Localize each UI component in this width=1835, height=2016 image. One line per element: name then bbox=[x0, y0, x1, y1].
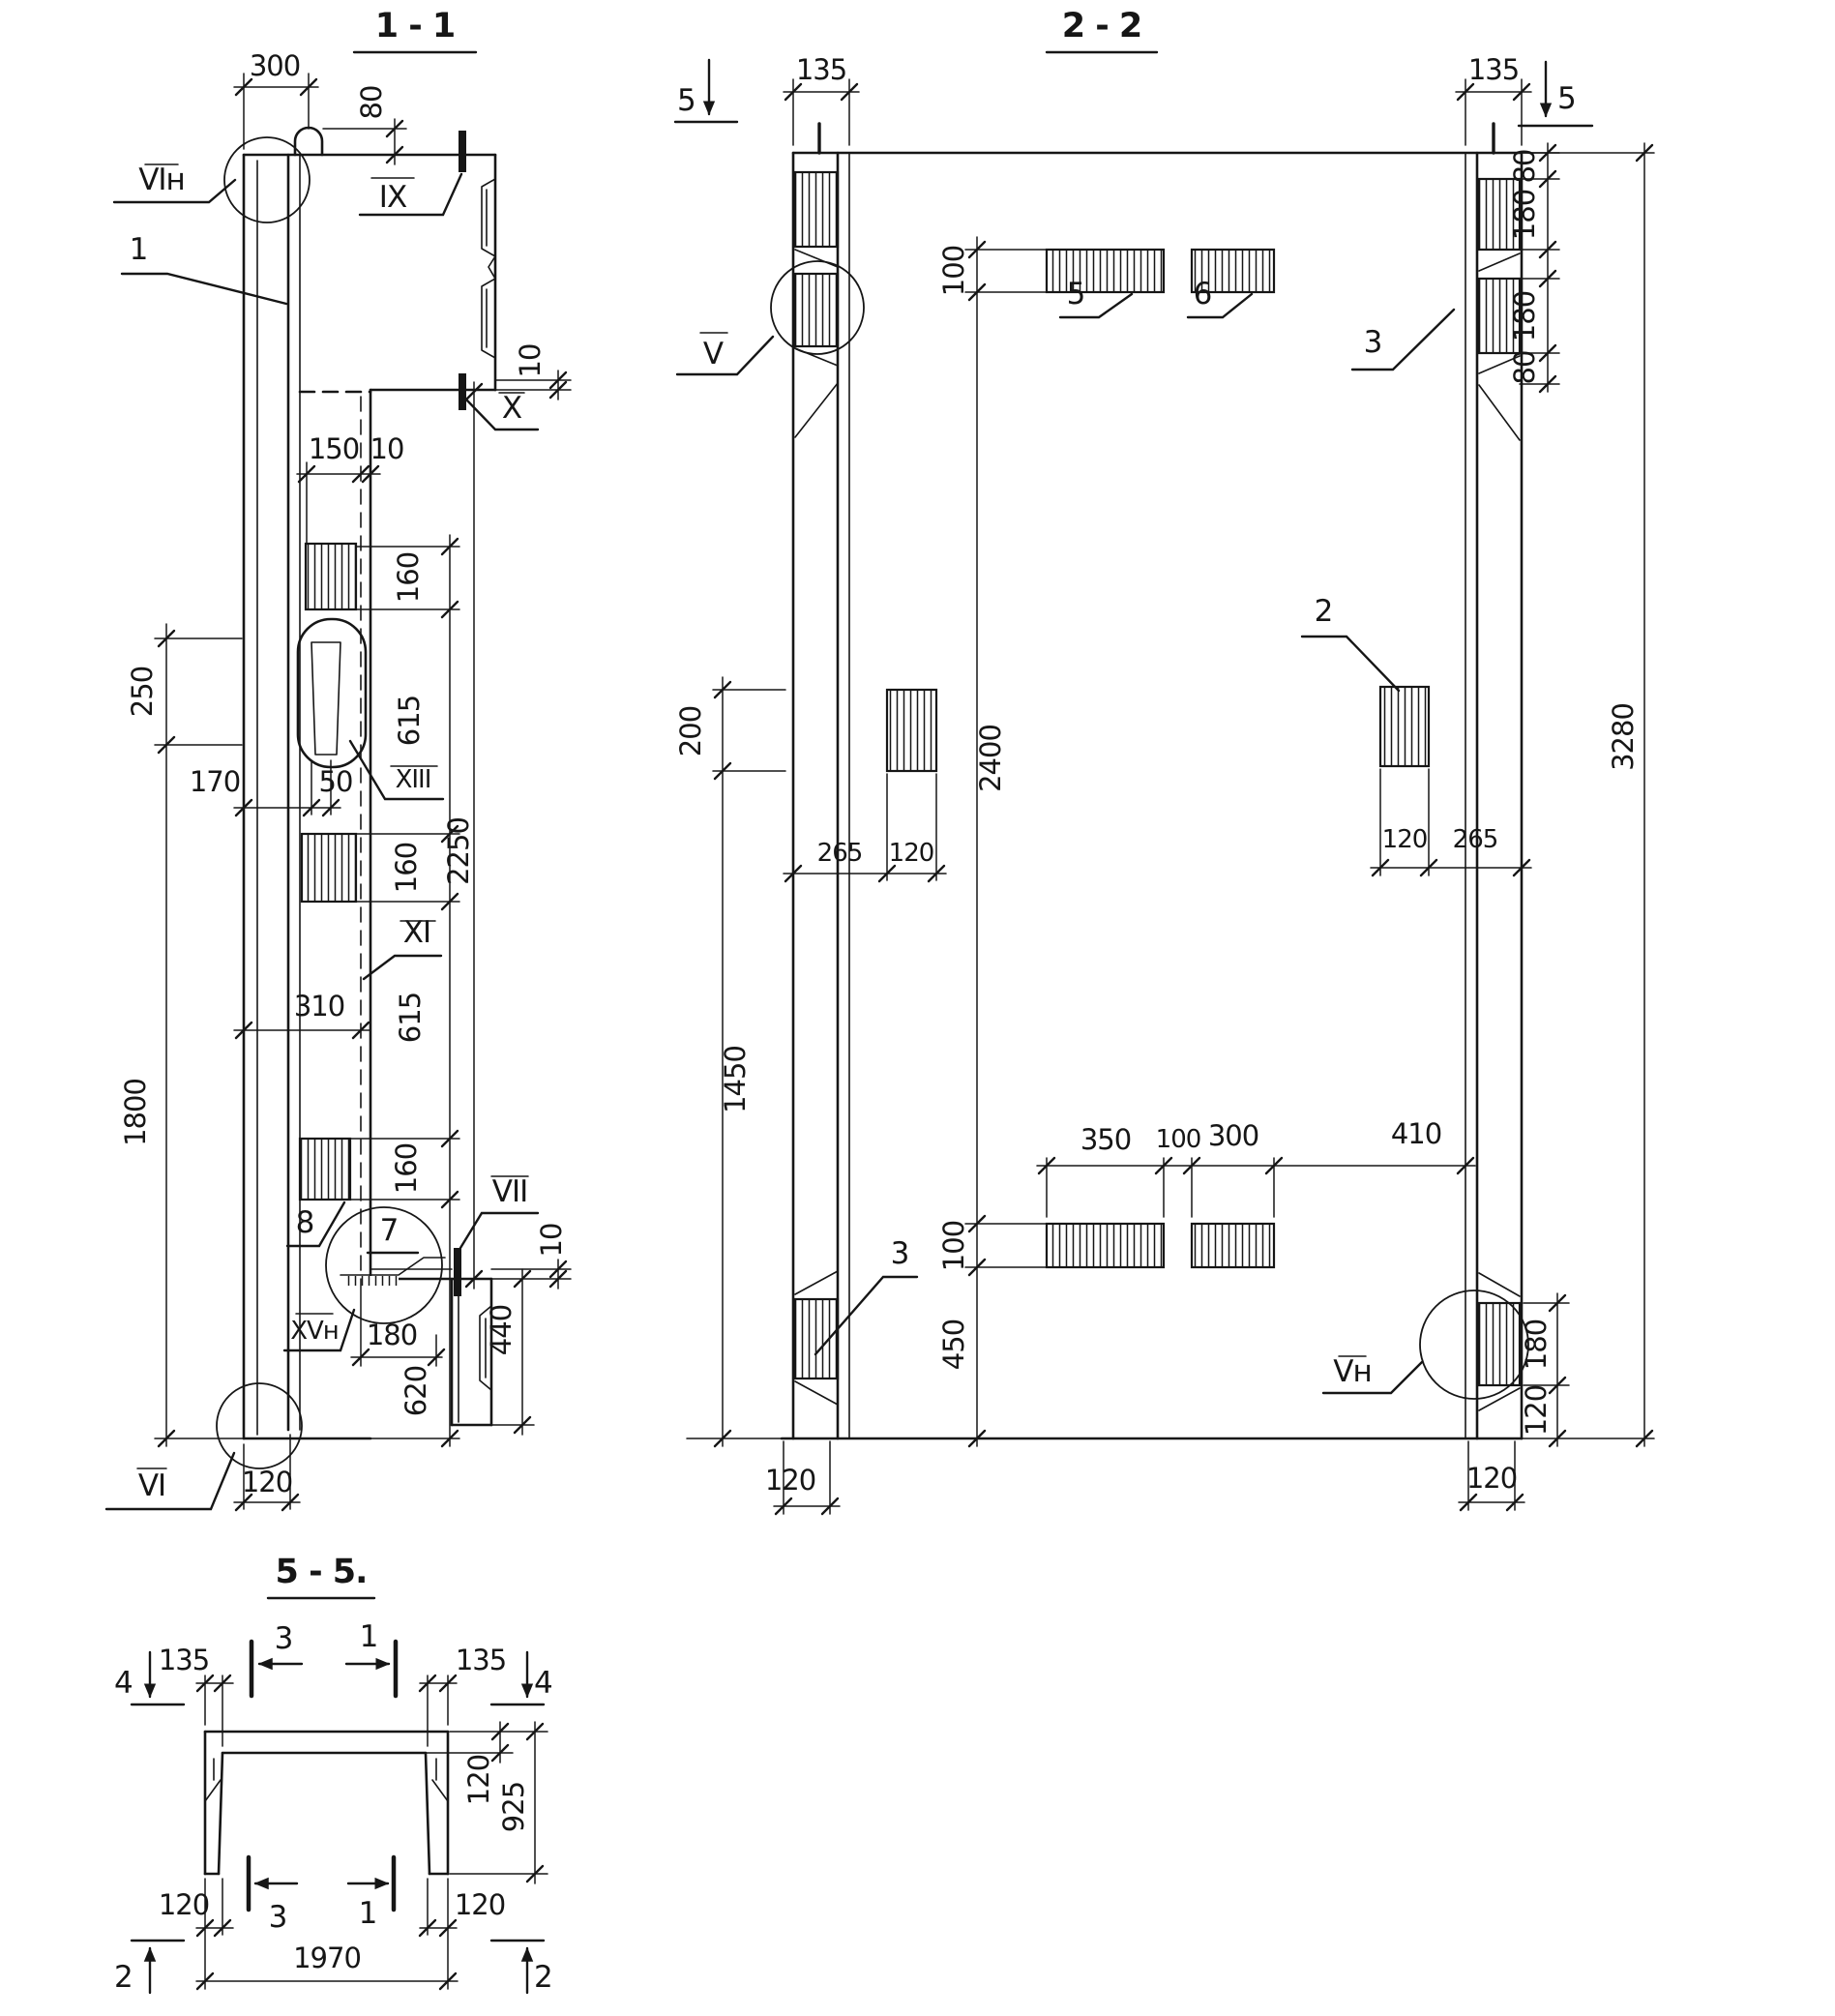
cut-mark-3-top: 3 bbox=[275, 1621, 293, 1656]
section-5-5-outline bbox=[205, 1732, 448, 1874]
dim-2400: 2400 bbox=[974, 725, 1007, 792]
cut-mark-4-right: 4 bbox=[534, 1666, 552, 1701]
label-ix: IX bbox=[379, 180, 407, 215]
rib-rebar-hatch bbox=[795, 172, 838, 247]
rib-rebar-hatch bbox=[1479, 1303, 1520, 1385]
dim-135-left: 135 bbox=[159, 1644, 209, 1676]
dim-620: 620 bbox=[400, 1366, 432, 1416]
dim-615-b: 615 bbox=[394, 993, 427, 1043]
dim-100-bottom: 100 bbox=[937, 1221, 970, 1271]
embedded-plate-hatch bbox=[306, 544, 356, 609]
label-2: 2 bbox=[1315, 594, 1333, 629]
dim-250: 250 bbox=[126, 667, 159, 717]
dim-310: 310 bbox=[294, 990, 344, 1023]
dim-10-web: 10 bbox=[370, 432, 404, 465]
dim-615-a: 615 bbox=[393, 696, 426, 746]
dim-80-b: 80 bbox=[1508, 351, 1541, 385]
dim-120-bottom-right: 120 bbox=[1466, 1462, 1517, 1495]
dim-265-right: 265 bbox=[1453, 825, 1498, 854]
label-vii: VII bbox=[492, 1174, 528, 1209]
cut-mark-2-right: 2 bbox=[534, 1960, 552, 1995]
dim-ticks-5-5 bbox=[197, 1675, 543, 1989]
dim-410: 410 bbox=[1391, 1117, 1441, 1150]
dim-200: 200 bbox=[674, 706, 707, 756]
section-5-5-markers bbox=[132, 1642, 544, 1993]
label-vn: Vн bbox=[1333, 1354, 1371, 1389]
dim-180: 180 bbox=[367, 1319, 417, 1351]
dim-120-bottom-left: 120 bbox=[765, 1464, 815, 1497]
dim-160-b: 160 bbox=[390, 843, 423, 893]
section-2-2-hatches bbox=[771, 172, 1528, 1399]
lifting-slot-inner bbox=[311, 642, 340, 755]
dim-135-left: 135 bbox=[796, 53, 846, 86]
blueprint-page: 1 - 1 300 80 10 VIн 1 IX X 150 10 160 61… bbox=[0, 0, 1835, 2016]
dim-2250: 2250 bbox=[442, 817, 475, 885]
label-3-right: 3 bbox=[1364, 325, 1382, 360]
dim-350: 350 bbox=[1080, 1123, 1131, 1156]
dim-1450: 1450 bbox=[719, 1046, 752, 1113]
cut-mark-2-left: 2 bbox=[114, 1960, 133, 1995]
dim-135-right: 135 bbox=[1468, 53, 1519, 86]
dim-1800: 1800 bbox=[119, 1079, 152, 1146]
dim-100-top: 100 bbox=[937, 246, 970, 296]
dim-120-right: 120 bbox=[1382, 825, 1428, 854]
label-v: V bbox=[703, 337, 724, 371]
mesh-bar-hatch bbox=[1047, 250, 1164, 292]
embedded-plate-hatch bbox=[302, 834, 356, 902]
section-title: 5 - 5. bbox=[276, 1553, 368, 1591]
dim-160-a: 160 bbox=[392, 552, 425, 603]
drawing-canvas: 1 - 1 300 80 10 VIн 1 IX X 150 10 160 61… bbox=[0, 0, 1835, 2016]
dim-170: 170 bbox=[190, 765, 240, 798]
dim-120: 120 bbox=[242, 1466, 292, 1498]
section-1-1-embedded-hatches bbox=[298, 544, 366, 1200]
detail-7-hatch bbox=[344, 1276, 399, 1286]
label-6: 6 bbox=[1194, 277, 1212, 311]
dim-120-left: 120 bbox=[889, 839, 934, 868]
keyway-notch bbox=[482, 179, 495, 256]
label-1: 1 bbox=[130, 232, 148, 267]
dim-160-c: 160 bbox=[390, 1143, 423, 1194]
dim-120-rb: 120 bbox=[1520, 1385, 1553, 1436]
dim-450: 450 bbox=[937, 1319, 970, 1370]
label-8: 8 bbox=[296, 1205, 314, 1240]
label-xi: XI bbox=[403, 915, 430, 950]
section-5-5-dim-lines bbox=[196, 1675, 548, 1989]
dim-150: 150 bbox=[309, 432, 359, 465]
dim-180-b: 180 bbox=[1508, 291, 1541, 341]
dim-180-rb: 180 bbox=[1520, 1319, 1553, 1370]
dim-120-flange: 120 bbox=[462, 1755, 495, 1805]
dim-265-left: 265 bbox=[817, 839, 863, 868]
detail-7-seat bbox=[340, 1258, 445, 1275]
cut-mark-4-left: 4 bbox=[114, 1666, 133, 1701]
dim-1970: 1970 bbox=[293, 1942, 361, 1974]
section-title: 2 - 2 bbox=[1062, 7, 1142, 45]
cut-mark-5-right: 5 bbox=[1557, 81, 1576, 116]
cut-mark-1-top: 1 bbox=[360, 1619, 378, 1654]
embedded-plate-hatch bbox=[300, 1139, 350, 1200]
dim-135-right: 135 bbox=[456, 1644, 506, 1676]
embedded-plate-hatch bbox=[1380, 687, 1429, 766]
label-x: X bbox=[502, 391, 522, 426]
dim-300: 300 bbox=[1208, 1119, 1258, 1152]
dim-300: 300 bbox=[250, 49, 300, 82]
section-1-1-view: 1 - 1 300 80 10 VIн 1 IX X 150 10 160 61… bbox=[106, 7, 571, 1510]
embedded-plate-hatch bbox=[887, 690, 936, 771]
section-1-1-cut-marks bbox=[458, 131, 462, 1296]
label-vi: VI bbox=[138, 1468, 165, 1503]
section-2-2-view: 2 - 2 5 5 135 135 80 180 180 80 100 5 6 … bbox=[674, 7, 1654, 1514]
dim-80-a: 80 bbox=[1508, 150, 1541, 184]
dim-10-bottom: 10 bbox=[535, 1224, 568, 1258]
dim-100-mid: 100 bbox=[1156, 1125, 1201, 1154]
section-title: 1 - 1 bbox=[375, 7, 456, 45]
mesh-bar-hatch bbox=[1192, 1224, 1274, 1267]
section-5-5-view: 5 - 5. 4 4 135 135 3 1 120 925 3 1 120 1… bbox=[114, 1553, 552, 1995]
dim-50: 50 bbox=[319, 765, 353, 798]
dim-180-a: 180 bbox=[1508, 190, 1541, 240]
label-5: 5 bbox=[1067, 277, 1085, 311]
section-1-1-outline bbox=[244, 128, 495, 1438]
label-xiii: XIII bbox=[396, 765, 431, 794]
section-5-5-texts: 5 - 5. 4 4 135 135 3 1 120 925 3 1 120 1… bbox=[114, 1553, 552, 1995]
label-7: 7 bbox=[380, 1213, 399, 1248]
label-3-left: 3 bbox=[891, 1236, 909, 1271]
dim-925: 925 bbox=[497, 1782, 530, 1832]
cut-mark-1-bottom: 1 bbox=[359, 1896, 377, 1931]
mesh-bar-hatch bbox=[1047, 1224, 1164, 1267]
cut-mark-5-left: 5 bbox=[677, 83, 696, 118]
dim-10-top: 10 bbox=[514, 344, 547, 378]
dim-80: 80 bbox=[355, 86, 388, 120]
dim-120-bottom-left: 120 bbox=[159, 1888, 209, 1921]
cut-mark-3-bottom: 3 bbox=[269, 1900, 287, 1935]
dim-3280: 3280 bbox=[1607, 703, 1640, 771]
rib-rebar-hatch bbox=[795, 1299, 838, 1379]
rib-rebar-hatch bbox=[795, 274, 838, 346]
keyway-notch bbox=[482, 279, 495, 358]
label-vin: VIн bbox=[138, 163, 185, 197]
label-xvn: XVн bbox=[290, 1317, 339, 1346]
detail-circle-vin bbox=[224, 137, 310, 222]
lifting-slot bbox=[298, 619, 366, 767]
dim-120-bottom-right: 120 bbox=[455, 1888, 505, 1921]
dim-440: 440 bbox=[485, 1305, 518, 1355]
